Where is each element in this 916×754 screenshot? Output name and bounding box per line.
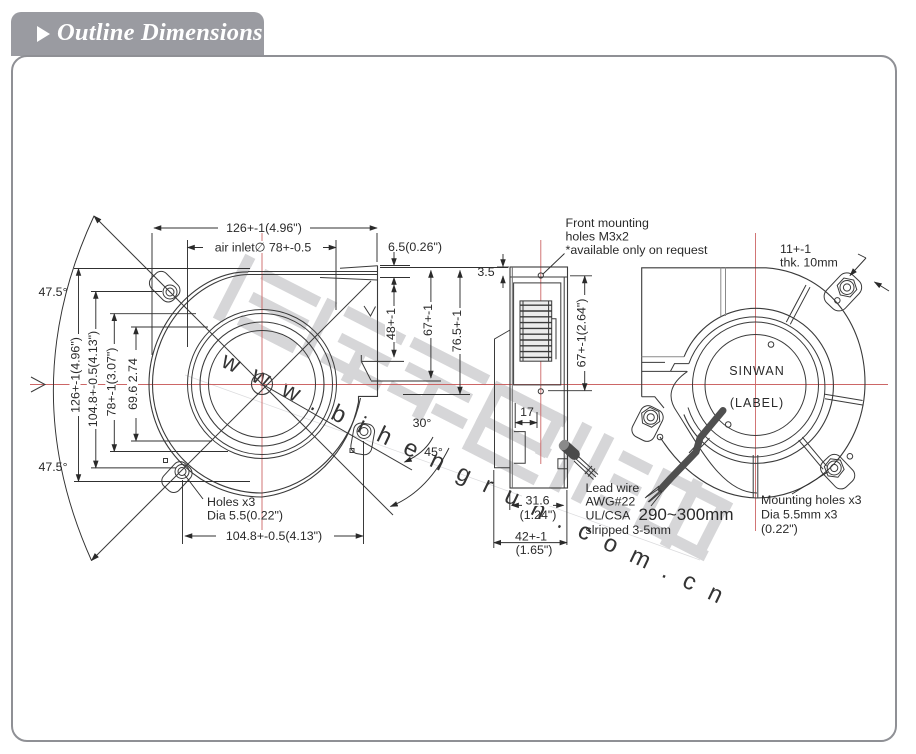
svg-text:thk. 10mm: thk. 10mm xyxy=(780,256,838,270)
svg-text:Mounting holes x3: Mounting holes x3 xyxy=(761,493,862,507)
svg-text:47.5°: 47.5° xyxy=(38,285,67,299)
svg-text:SINWAN: SINWAN xyxy=(729,364,785,378)
svg-text:126+-1(4.96"): 126+-1(4.96") xyxy=(226,221,302,235)
svg-text:11+-1: 11+-1 xyxy=(780,242,811,256)
svg-text:45°: 45° xyxy=(424,445,443,459)
svg-text:Dia 5.5mm x3: Dia 5.5mm x3 xyxy=(761,508,838,522)
svg-text:67+-1: 67+-1 xyxy=(421,304,435,336)
svg-text:(1.65"): (1.65") xyxy=(516,543,553,557)
svg-text:67+-1(2.64"): 67+-1(2.64") xyxy=(575,299,589,368)
svg-text:6.5(0.26"): 6.5(0.26") xyxy=(388,240,442,254)
svg-text:30°: 30° xyxy=(413,416,432,430)
svg-text:Holes x3: Holes x3 xyxy=(207,495,255,509)
svg-text:slripped 3-5mm: slripped 3-5mm xyxy=(586,523,671,537)
svg-text:78+-1(3.07"): 78+-1(3.07") xyxy=(104,348,118,417)
svg-text:47.5°: 47.5° xyxy=(38,460,67,474)
svg-text:17: 17 xyxy=(520,405,534,419)
svg-text:31.6: 31.6 xyxy=(525,494,549,508)
svg-text:104.8+-0.5(4.13"): 104.8+-0.5(4.13") xyxy=(86,331,100,427)
svg-text:104.8+-0.5(4.13"): 104.8+-0.5(4.13") xyxy=(226,529,322,543)
svg-text:76.5+-1: 76.5+-1 xyxy=(450,310,464,352)
svg-text:Dia 5.5(0.22"): Dia 5.5(0.22") xyxy=(207,509,283,523)
svg-text:UL/CSA: UL/CSA xyxy=(586,509,631,523)
svg-text:(LABEL): (LABEL) xyxy=(730,396,784,410)
svg-text:69.6 2.74: 69.6 2.74 xyxy=(126,358,140,410)
svg-text:(0.22"): (0.22") xyxy=(761,522,798,536)
svg-text:126+-1(4.96"): 126+-1(4.96") xyxy=(69,337,83,413)
svg-text:Lead wire: Lead wire xyxy=(586,481,640,495)
svg-text:*available only on request: *available only on request xyxy=(566,243,708,257)
svg-text:48+-1: 48+-1 xyxy=(384,308,398,340)
svg-text:290~300mm: 290~300mm xyxy=(639,505,734,524)
svg-text:42+-1: 42+-1 xyxy=(515,530,547,544)
svg-text:holes M3x2: holes M3x2 xyxy=(566,230,629,244)
svg-text:Front mounting: Front mounting xyxy=(566,216,649,230)
svg-text:AWG#22: AWG#22 xyxy=(586,495,636,509)
svg-text:(1.24"): (1.24") xyxy=(520,508,557,522)
svg-text:3.5: 3.5 xyxy=(477,265,494,279)
svg-text:air inlet∅ 78+-0.5: air inlet∅ 78+-0.5 xyxy=(215,241,312,255)
